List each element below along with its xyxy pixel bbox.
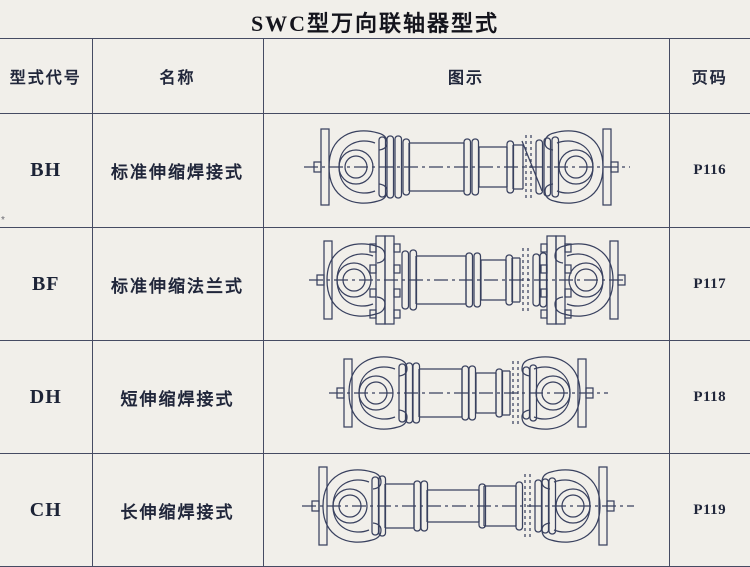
header-name: 名称 bbox=[92, 39, 263, 114]
coupling-type-table: 型式代号 名称 图示 页码 BH 标准伸缩焊接式 P116 BF 标准伸缩法兰式… bbox=[0, 38, 750, 567]
page-number: P117 bbox=[669, 228, 750, 341]
type-code: BF bbox=[0, 228, 92, 341]
table-row: BH 标准伸缩焊接式 P116 bbox=[0, 114, 750, 228]
header-illustration: 图示 bbox=[263, 39, 669, 114]
page-number: P118 bbox=[669, 341, 750, 454]
page-title: SWC型万向联轴器型式 bbox=[0, 6, 750, 38]
cardan-shaft-drawing-bf bbox=[264, 228, 669, 340]
type-code: BH bbox=[0, 114, 92, 228]
table-row: DH 短伸缩焊接式 P118 bbox=[0, 341, 750, 454]
table-header-row: 型式代号 名称 图示 页码 bbox=[0, 39, 750, 114]
cardan-shaft-drawing-dh bbox=[264, 341, 669, 453]
table-row: CH 长伸缩焊接式 P119 bbox=[0, 454, 750, 567]
type-code: CH bbox=[0, 454, 92, 567]
type-name: 标准伸缩焊接式 bbox=[92, 114, 263, 228]
page-number: P116 bbox=[669, 114, 750, 228]
type-name: 短伸缩焊接式 bbox=[92, 341, 263, 454]
catalog-page: SWC型万向联轴器型式 * 型式代号 名称 图示 页码 BH 标准伸缩焊接式 P… bbox=[0, 0, 750, 567]
type-name: 标准伸缩法兰式 bbox=[92, 228, 263, 341]
page-number: P119 bbox=[669, 454, 750, 567]
table-row: BF 标准伸缩法兰式 P117 bbox=[0, 228, 750, 341]
header-type-code: 型式代号 bbox=[0, 39, 92, 114]
cardan-shaft-drawing-bh bbox=[264, 115, 669, 227]
header-page: 页码 bbox=[669, 39, 750, 114]
type-code: DH bbox=[0, 341, 92, 454]
type-name: 长伸缩焊接式 bbox=[92, 454, 263, 567]
cardan-shaft-drawing-ch bbox=[264, 454, 669, 566]
